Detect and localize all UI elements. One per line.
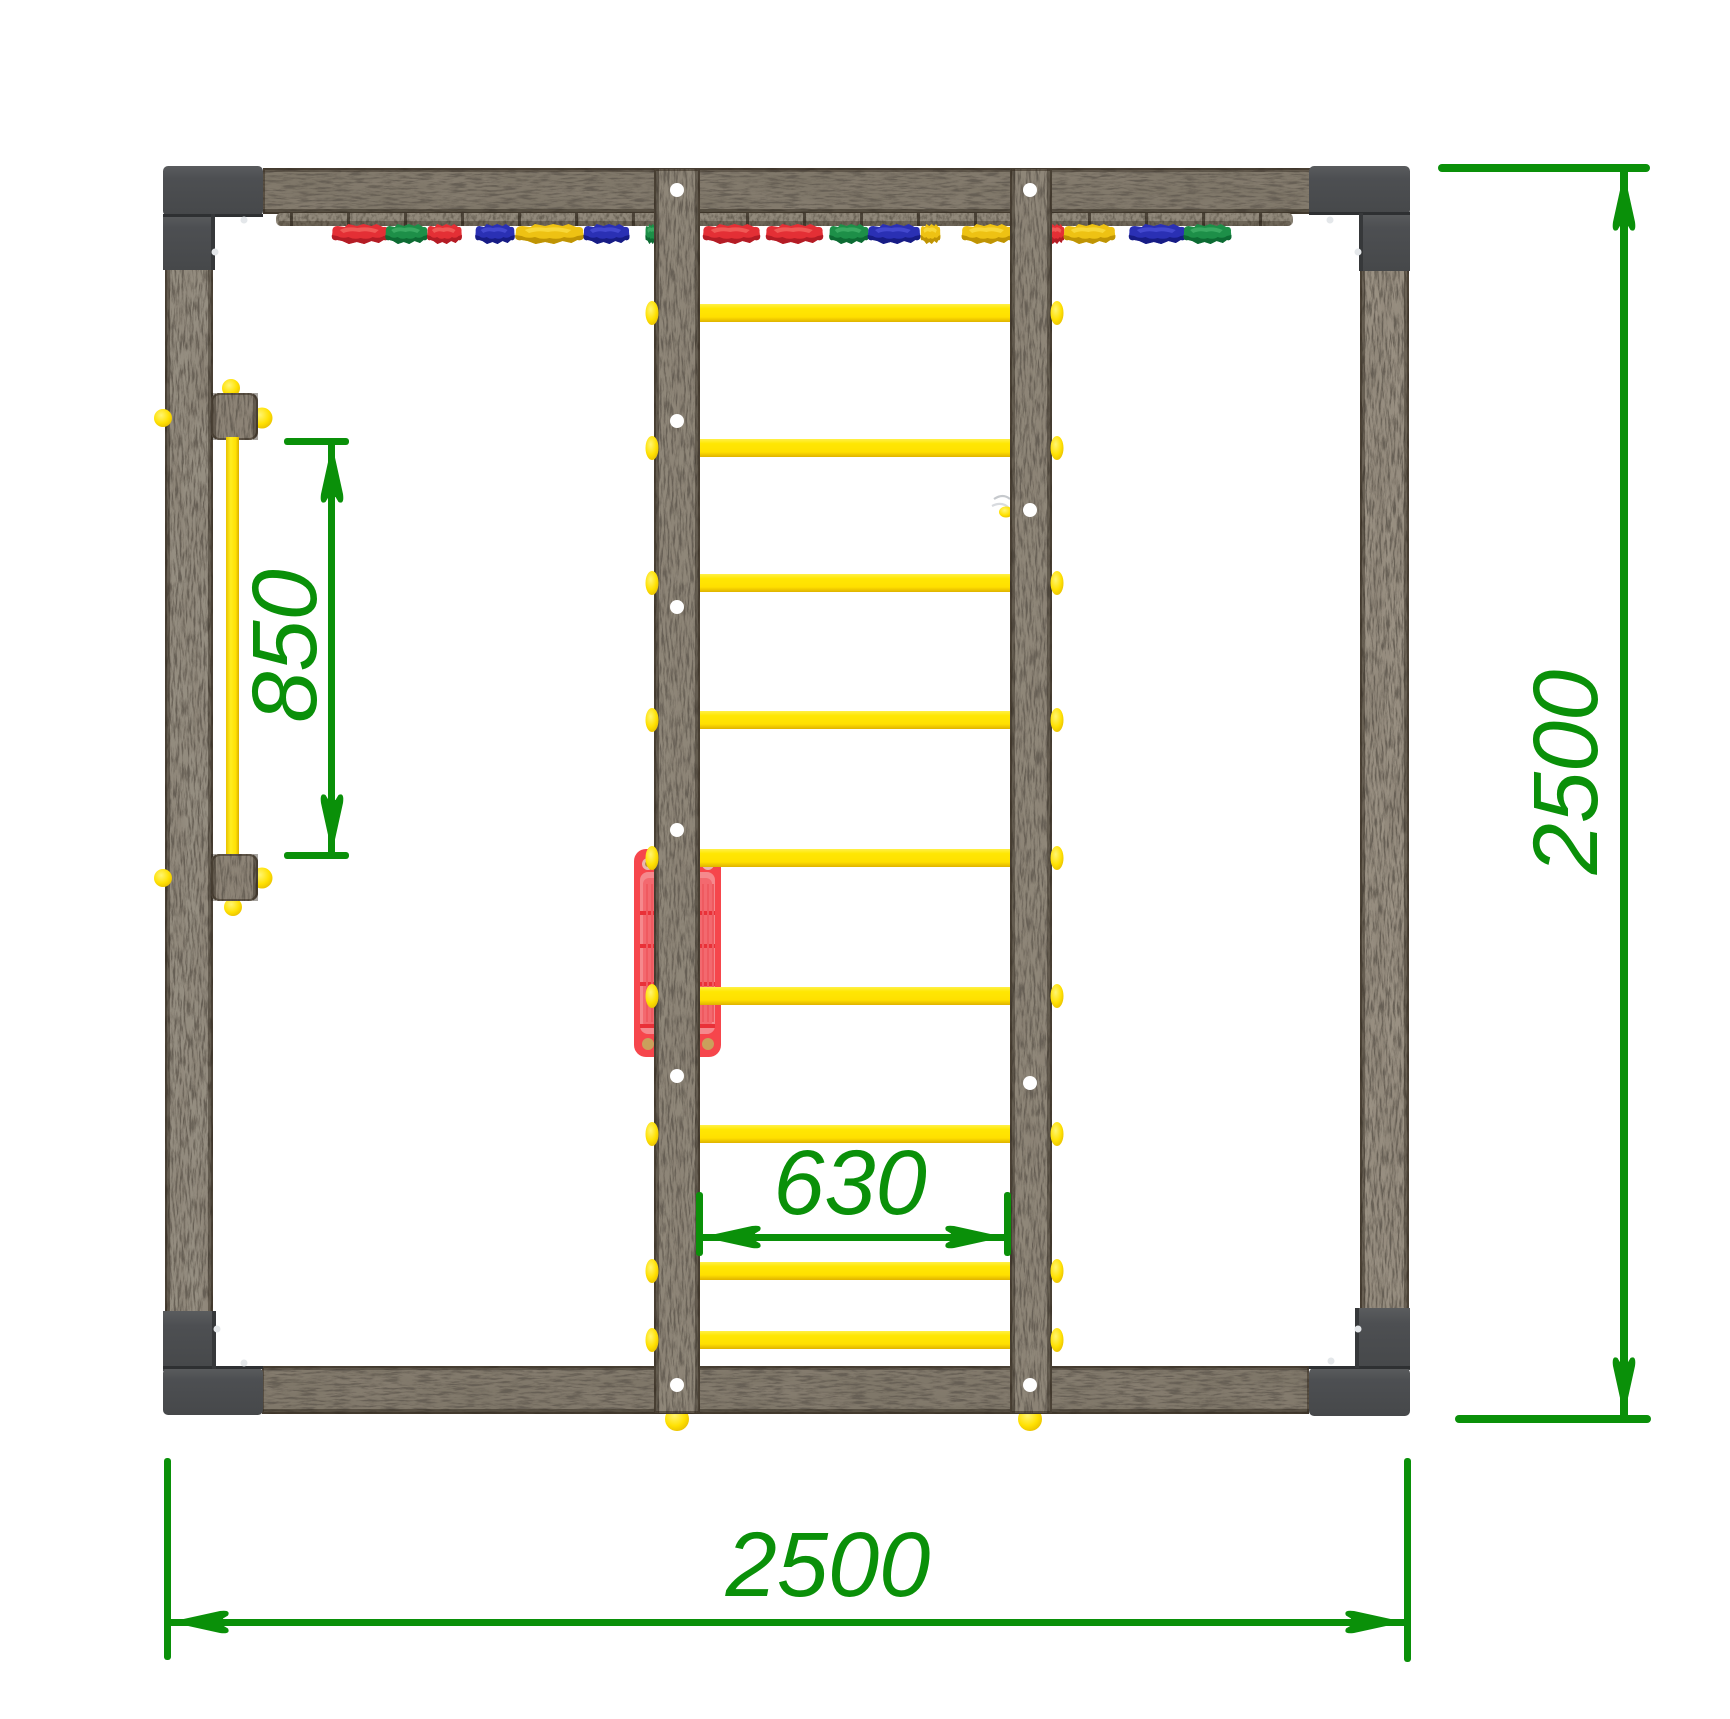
svg-text:2500: 2500 [725,1514,931,1616]
svg-text:630: 630 [773,1132,927,1234]
svg-text:850: 850 [234,569,336,723]
svg-text:2500: 2500 [1515,670,1617,876]
